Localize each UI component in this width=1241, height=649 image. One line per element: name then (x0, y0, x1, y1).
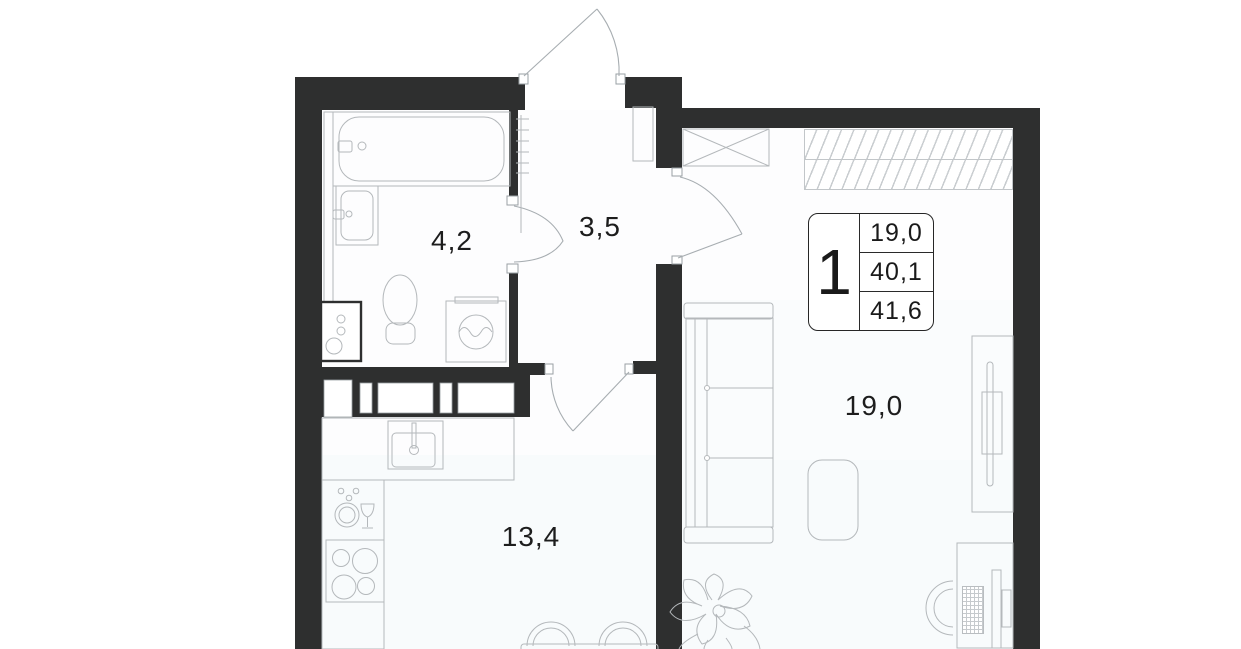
room-label-kitchen: 13,4 (502, 521, 561, 553)
room-label-living: 19,0 (845, 390, 904, 422)
unit-rooms-count: 1 (809, 214, 860, 330)
room-label-hallway: 3,5 (579, 211, 621, 243)
wardrobe-shelf (805, 130, 1012, 160)
unit-area: 40,1 (860, 252, 933, 291)
unit-info-card: 1 19,0 40,1 41,6 (808, 213, 934, 331)
unit-living-area: 19,0 (860, 214, 933, 252)
boiler-icon (321, 302, 361, 361)
wardrobe-shelf (805, 160, 1012, 190)
keyboard-icon (962, 586, 984, 634)
floor-plan-drawing (0, 0, 1241, 649)
wardrobe-icon (804, 129, 1013, 190)
unit-total-area: 41,6 (860, 291, 933, 330)
floor-plan: 1 19,0 40,1 41,6 4,2 3,5 13,4 19,0 (0, 0, 1241, 649)
unit-areas: 19,0 40,1 41,6 (860, 214, 933, 330)
room-label-bathroom: 4,2 (431, 225, 473, 257)
entrance-door-icon (524, 9, 619, 76)
